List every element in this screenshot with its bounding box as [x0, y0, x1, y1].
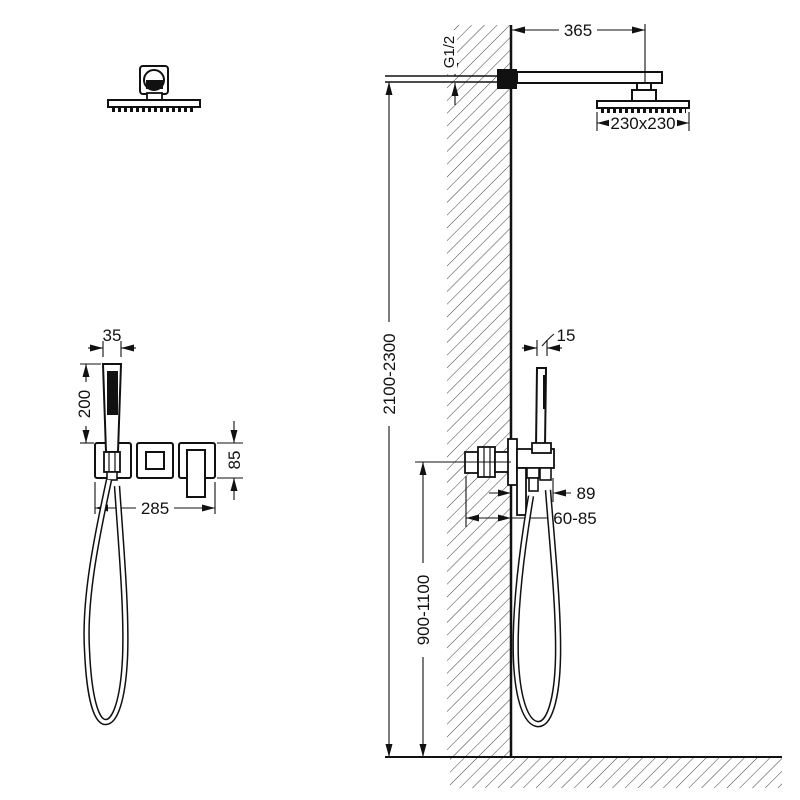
- hose-outlet: [527, 468, 539, 478]
- wall-union: [497, 69, 517, 89]
- floor-section: [385, 757, 782, 788]
- dim-60-85-label: 60-85: [553, 509, 596, 528]
- dim-trim-width: 285: [136, 499, 174, 518]
- dim-mixer-height: 900-1100: [413, 563, 433, 657]
- wand-holder-cup: [532, 443, 551, 453]
- dim-15-label: 15: [557, 326, 576, 345]
- dim-230x230-label: 230x230: [610, 114, 675, 133]
- dim-85-label: 85: [225, 451, 244, 470]
- technical-drawing-page: 365 G1/2 230x230 2100-2300 900-1100 15 8…: [0, 0, 800, 800]
- shower-head-plate: [597, 101, 689, 108]
- hand-shower-side-view: [532, 368, 551, 453]
- dimension-labels-front-view: 35 200 285 85: [75, 326, 244, 518]
- lever-handle-front: [187, 450, 205, 497]
- dim-35-label: 35: [103, 326, 122, 345]
- lever-handle-side: [517, 468, 526, 515]
- shower-hose-front-view: [87, 480, 126, 722]
- dim-handset-length: 200: [75, 382, 94, 426]
- hose-connector-nut: [104, 452, 120, 472]
- shower-hose-side-view: [516, 490, 558, 724]
- dim-285-label: 285: [141, 499, 169, 518]
- overhead-shower-side-view: [597, 83, 689, 111]
- joint-clamp: [146, 80, 163, 89]
- dim-200-label: 200: [75, 390, 94, 418]
- mixer-trim-front-view: [137, 443, 215, 497]
- shower-arm: [517, 72, 662, 83]
- floor-hatch: [450, 758, 782, 788]
- overhead-shower-front-view: [108, 66, 200, 110]
- dim-89-label: 89: [577, 484, 596, 503]
- shower-head-plate-front: [108, 100, 200, 107]
- wall-section: [447, 25, 511, 757]
- dim-arm-length: 365: [559, 21, 597, 40]
- diverter-knob: [146, 452, 164, 469]
- dimension-labels-side-view: 365 G1/2 230x230 2100-2300 900-1100 15 8…: [379, 21, 677, 657]
- dim-mount-height: 2100-2300: [379, 322, 399, 426]
- spray-face: [107, 371, 118, 415]
- dim-trim-height: 85: [225, 444, 244, 476]
- dim-thread: G1/2: [439, 30, 458, 74]
- dim-2100-2300-label: 2100-2300: [380, 333, 399, 414]
- wall-hatch: [447, 25, 511, 757]
- dim-head-size: 230x230: [609, 114, 677, 133]
- dim-365-label: 365: [564, 21, 592, 40]
- spray-face-edge: [543, 375, 546, 409]
- shower-installation-diagram: 365 G1/2 230x230 2100-2300 900-1100 15 8…: [0, 0, 800, 800]
- dim-900-1100-label: 900-1100: [414, 575, 433, 646]
- dim-g12-label: G1/2: [441, 36, 458, 69]
- hand-shower-front-view: [95, 364, 131, 480]
